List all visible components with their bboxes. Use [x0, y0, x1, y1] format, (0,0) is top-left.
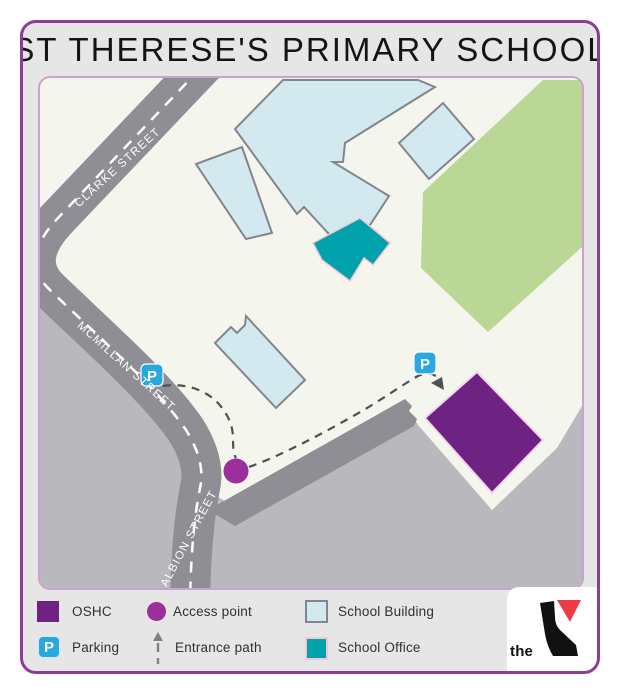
- legend-access-point-label: Access point: [173, 603, 252, 621]
- legend-school-office-swatch: [305, 637, 328, 660]
- poster-frame: ST THERESE'S PRIMARY SCHOOL: [20, 20, 600, 674]
- page-title: ST THERESE'S PRIMARY SCHOOL: [23, 25, 597, 75]
- map-canvas: P P CLARKE STREET MCMILLAN STREET ALBION…: [40, 78, 582, 588]
- parking-letter: P: [420, 356, 430, 373]
- logo-the-text: the: [510, 643, 533, 660]
- legend-oshc-label: OSHC: [72, 603, 112, 621]
- legend-parking-icon: P: [38, 636, 60, 658]
- legend-school-office-label: School Office: [338, 639, 421, 657]
- y-logo-icon: [539, 600, 581, 663]
- legend-entrance-path-icon: [151, 632, 165, 664]
- ymca-logo: the: [507, 587, 597, 671]
- parking-letter: P: [44, 639, 54, 656]
- legend-school-building-swatch: [305, 600, 328, 623]
- legend-oshc-swatch: [37, 601, 59, 622]
- school-building-south: [215, 316, 305, 408]
- parking-marker-east: P: [414, 352, 436, 374]
- legend-entrance-path-label: Entrance path: [175, 639, 262, 657]
- school-map: P P CLARKE STREET MCMILLAN STREET ALBION…: [38, 76, 584, 590]
- legend-access-point-icon: [147, 602, 166, 621]
- access-point-marker: [224, 459, 249, 484]
- entrance-path-arrowhead: [431, 377, 444, 390]
- legend-school-building-label: School Building: [338, 603, 434, 621]
- legend-parking-label: Parking: [72, 639, 119, 657]
